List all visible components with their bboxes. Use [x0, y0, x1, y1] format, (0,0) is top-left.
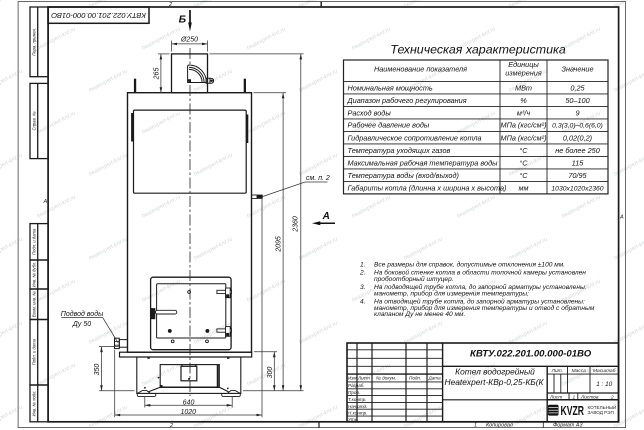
svg-text:клапаном Ду не менее 40 мм.: клапаном Ду не менее 40 мм. — [374, 311, 466, 318]
svg-text:350: 350 — [94, 364, 101, 376]
svg-text:50–100: 50–100 — [565, 96, 589, 105]
svg-text:0,3(3,0)–0,6(6,0): 0,3(3,0)–0,6(6,0) — [552, 123, 603, 130]
svg-text:2: 2 — [610, 394, 614, 400]
svg-text:А: А — [43, 199, 48, 205]
svg-text:1: 1 — [573, 394, 576, 400]
svg-text:2: 2 — [169, 423, 173, 429]
svg-text:не более 250: не более 250 — [555, 146, 600, 155]
svg-text:Масштаб: Масштаб — [593, 368, 616, 374]
svg-text:Все размеры для справок, допус: Все размеры для справок, допустимые откл… — [374, 261, 565, 269]
svg-text:Значение: Значение — [561, 65, 593, 74]
svg-text:Т.контр.: Т.контр. — [348, 397, 367, 402]
svg-text:Габариты котла (длинна х ширин: Габариты котла (длинна х ширина х высота… — [348, 183, 507, 192]
svg-text:1 : 10: 1 : 10 — [596, 381, 612, 388]
svg-text:Пров.: Пров. — [348, 390, 360, 395]
svg-text:°С: °С — [519, 146, 528, 155]
svg-text:Подп. и дата: Подп. и дата — [32, 228, 37, 255]
svg-text:Рабочее давление воды: Рабочее давление воды — [348, 121, 430, 130]
svg-text:Подвод воды: Подвод воды — [61, 310, 104, 318]
svg-text:МПа (кгс/см²): МПа (кгс/см²) — [500, 121, 546, 130]
svg-text:Максимальная рабочая температу: Максимальная рабочая температура воды — [348, 158, 499, 167]
svg-text:КВТУ.022.201.00.000-01ВО: КВТУ.022.201.00.000-01ВО — [51, 11, 146, 20]
svg-text:115: 115 — [572, 158, 585, 167]
svg-text:м³/ч: м³/ч — [517, 108, 530, 117]
svg-text:Подп.: Подп. — [409, 376, 421, 381]
svg-text:Нач.отд.: Нач.отд. — [348, 404, 367, 409]
svg-text:КВТУ.022.201.00.000-01ВО: КВТУ.022.201.00.000-01ВО — [470, 349, 592, 360]
svg-text:Лист: Лист — [549, 394, 562, 400]
svg-text:Техническая характеристика: Техническая характеристика — [390, 42, 566, 56]
svg-text:Изм: Изм — [348, 376, 357, 381]
svg-text:Справ. №: Справ. № — [32, 111, 37, 130]
svg-text:640: 640 — [183, 399, 195, 406]
svg-text:измерения: измерения — [505, 68, 542, 77]
svg-text:Температура воды (вход/выход): Температура воды (вход/выход) — [348, 171, 459, 180]
svg-text:Инв. № дубл.: Инв. № дубл. — [32, 262, 37, 288]
svg-text:%: % — [520, 96, 527, 105]
svg-text:Формат А3: Формат А3 — [553, 423, 583, 429]
svg-text:Наименование показателя: Наименование показателя — [374, 65, 467, 74]
svg-text:Гидравлическое сопротивление к: Гидравлическое сопротивление котла — [348, 133, 482, 142]
svg-text:Разраб.: Разраб. — [348, 383, 365, 388]
svg-text:Н.контр.: Н.контр. — [348, 411, 367, 416]
svg-text:Подп. и дата: Подп. и дата — [32, 338, 37, 365]
svg-text:4.: 4. — [360, 299, 366, 306]
svg-text:2: 2 — [168, 2, 172, 8]
svg-text:МПа (кгс/см²): МПа (кгс/см²) — [500, 133, 546, 142]
svg-text:3.: 3. — [360, 284, 366, 291]
svg-text:Взам. инв. №: Взам. инв. № — [32, 291, 37, 317]
svg-text:KVZR: KVZR — [561, 403, 585, 418]
svg-text:1030х1020х2360: 1030х1020х2360 — [551, 185, 603, 192]
svg-text:Котел водогрейный: Котел водогрейный — [455, 367, 535, 377]
svg-text:ЗАВОД РЭП: ЗАВОД РЭП — [588, 410, 614, 415]
svg-text:2360: 2360 — [292, 216, 299, 233]
svg-text:Ду 50: Ду 50 — [72, 321, 91, 328]
svg-text:Диапазон рабочего регулировани: Диапазон рабочего регулирования — [347, 96, 467, 105]
svg-text:Перв. примен.: Перв. примен. — [32, 28, 37, 56]
svg-text:Дата: Дата — [428, 376, 442, 381]
svg-text:см. п. 2: см. п. 2 — [306, 175, 330, 182]
svg-text:265: 265 — [153, 68, 160, 81]
svg-text:МВт: МВт — [515, 83, 532, 92]
svg-text:1.: 1. — [360, 262, 366, 269]
svg-text:1020: 1020 — [181, 409, 197, 416]
svg-text:пробоотборный штуцер.: пробоотборный штуцер. — [374, 275, 454, 283]
svg-text:9: 9 — [575, 108, 579, 117]
svg-text:Номинальная мощность: Номинальная мощность — [348, 83, 433, 92]
svg-text:Температура уходящих газов: Температура уходящих газов — [348, 146, 451, 155]
svg-text:Листов: Листов — [580, 394, 599, 400]
svg-text:°С: °С — [519, 171, 528, 180]
svg-text:№ докум.: № докум. — [376, 376, 396, 381]
svg-text:2095: 2095 — [276, 236, 283, 253]
svg-text:Ø250: Ø250 — [180, 37, 198, 44]
svg-text:Утв.: Утв. — [348, 417, 358, 422]
svg-text:Расход воды: Расход воды — [348, 108, 392, 117]
svg-text:300: 300 — [267, 367, 274, 379]
svg-text:Масса: Масса — [572, 368, 587, 374]
svg-text:КОТЕЛЬНЫЙ: КОТЕЛЬНЫЙ — [588, 403, 617, 410]
svg-text:0,02(0,2): 0,02(0,2) — [563, 133, 592, 142]
svg-text:А: А — [322, 211, 330, 222]
svg-text:0,25: 0,25 — [570, 83, 585, 92]
svg-text:Б: Б — [179, 14, 187, 26]
svg-text:Heatexpert-КВр-0,25-КБ(К: Heatexpert-КВр-0,25-КБ(К — [445, 377, 545, 387]
svg-text:А: А — [619, 215, 624, 221]
svg-text:Инв. № подл.: Инв. № подл. — [32, 390, 37, 416]
svg-text:Копировал: Копировал — [486, 423, 513, 429]
svg-text:манометр, прибор для измерения: манометр, прибор для измерения температу… — [374, 289, 529, 297]
svg-text:1: 1 — [474, 423, 477, 429]
svg-text:мм: мм — [518, 183, 528, 192]
svg-text:°С: °С — [519, 158, 528, 167]
svg-text:Лист: Лист — [357, 376, 370, 381]
svg-text:70/95: 70/95 — [568, 171, 587, 180]
svg-text:2.: 2. — [359, 270, 366, 277]
svg-text:Лит.: Лит. — [551, 368, 563, 374]
